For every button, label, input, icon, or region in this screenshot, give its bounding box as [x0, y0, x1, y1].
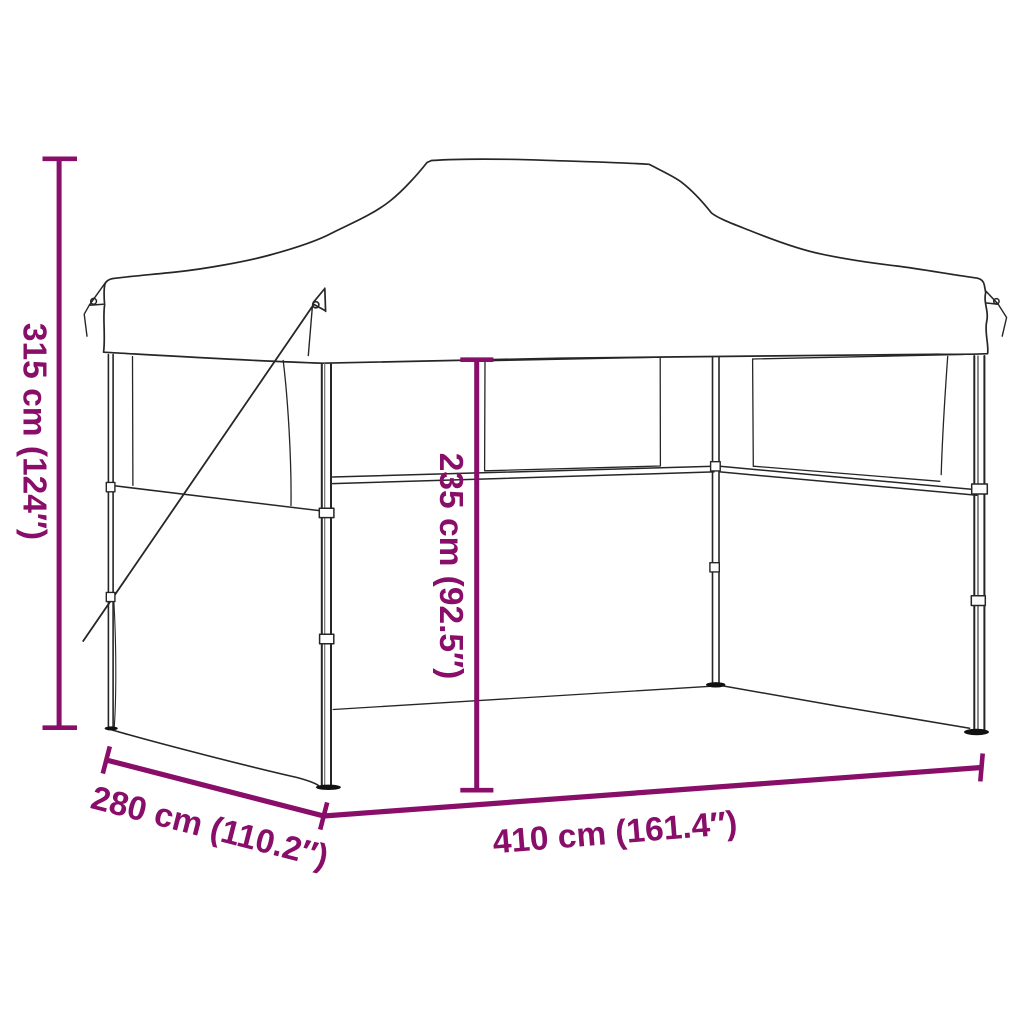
svg-text:235 cm (92.5″): 235 cm (92.5″) [432, 453, 469, 680]
svg-text:315 cm (124″): 315 cm (124″) [15, 323, 52, 540]
